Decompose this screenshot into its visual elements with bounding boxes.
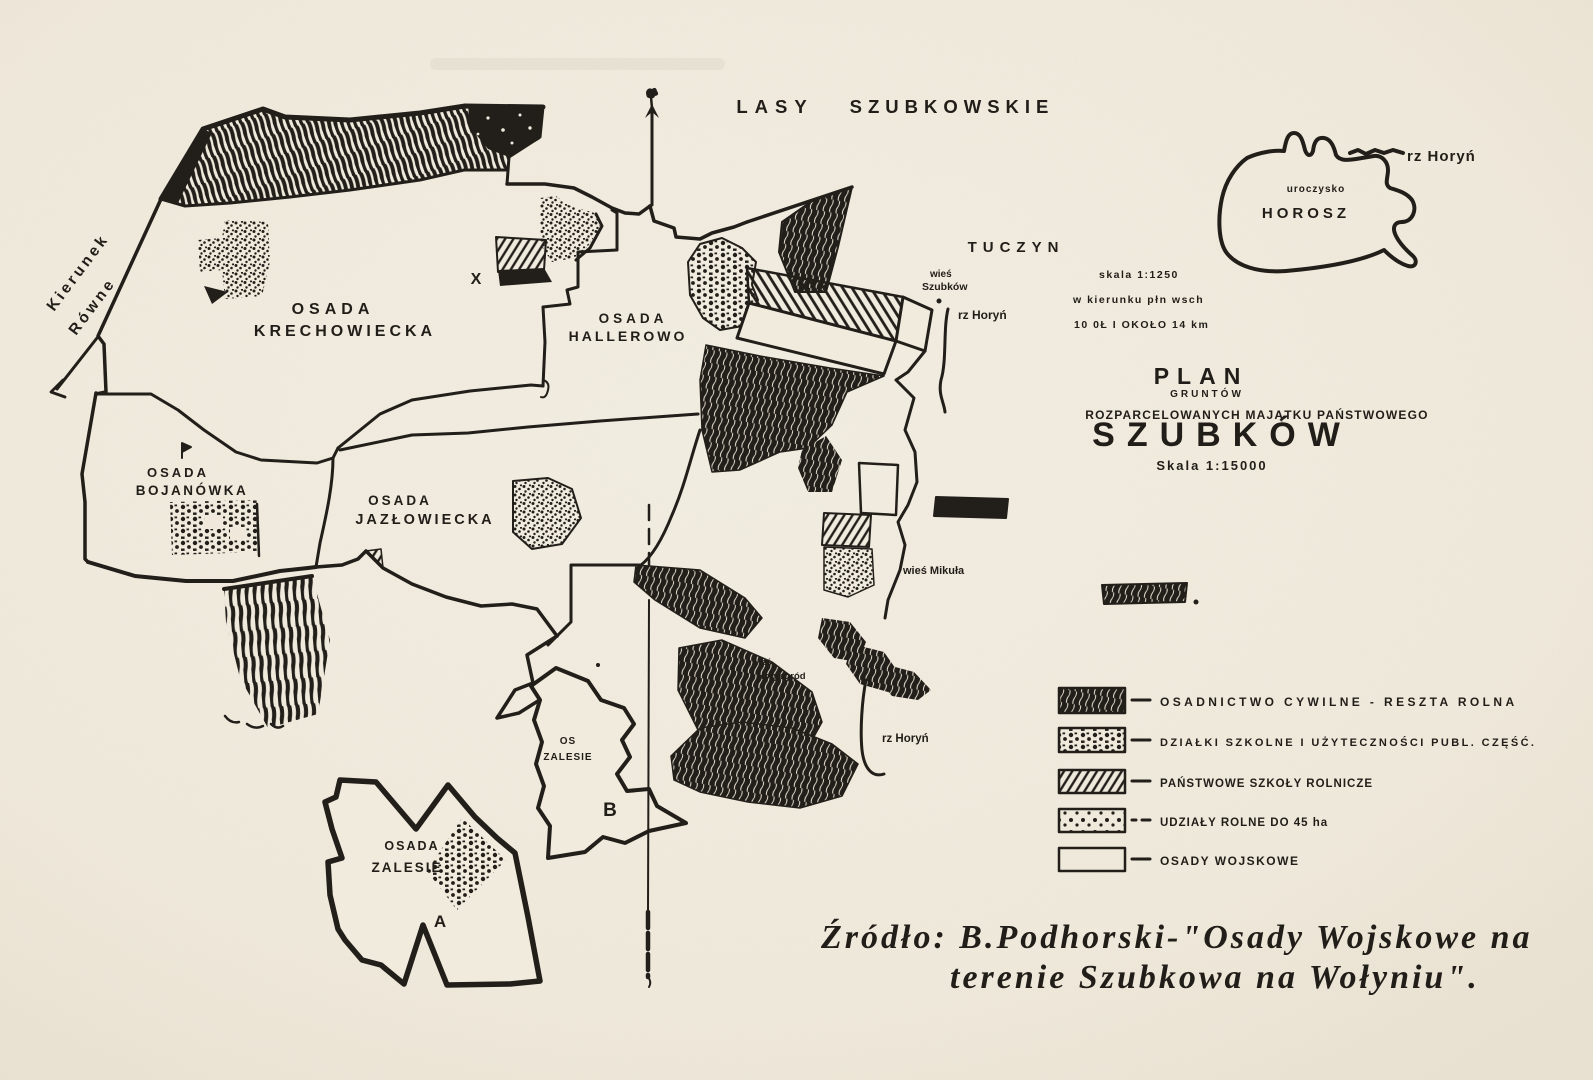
- svg-text:OSADY WOJSKOWE: OSADY WOJSKOWE: [1160, 854, 1299, 868]
- svg-text:uroczysko: uroczysko: [1287, 184, 1345, 195]
- svg-text:Horyngród: Horyngród: [757, 671, 806, 682]
- svg-text:skala 1:1250: skala 1:1250: [1099, 269, 1179, 281]
- svg-text:terenie Szubkowa na Wołyniu".: terenie Szubkowa na Wołyniu".: [950, 959, 1480, 996]
- svg-text:ZALESIE: ZALESIE: [543, 752, 592, 763]
- svg-text:TUCZYN: TUCZYN: [968, 239, 1065, 256]
- svg-text:PLAN: PLAN: [1154, 363, 1249, 389]
- svg-text:DZIAŁKI SZKOLNE I UŻYTECZNOŚCI: DZIAŁKI SZKOLNE I UŻYTECZNOŚCI PUBL. CZĘ…: [1160, 736, 1536, 749]
- svg-text:GRUNTÓW: GRUNTÓW: [1170, 387, 1244, 400]
- svg-text:wieś Mikuła: wieś Mikuła: [902, 565, 965, 577]
- svg-text:rz Horyń: rz Horyń: [1407, 148, 1476, 165]
- svg-text:UDZIAŁY ROLNE DO 45 ha: UDZIAŁY ROLNE DO 45 ha: [1160, 817, 1328, 829]
- svg-text:B: B: [603, 800, 617, 821]
- svg-text:X: X: [471, 271, 482, 288]
- svg-text:w kierunku płn wsch: w kierunku płn wsch: [1072, 294, 1204, 306]
- svg-text:OSADA: OSADA: [147, 465, 209, 480]
- svg-text:LASY: LASY: [736, 96, 813, 117]
- svg-text:ZALESIE: ZALESIE: [371, 860, 442, 875]
- svg-text:OS: OS: [560, 736, 576, 747]
- svg-text:SZUBKÓW: SZUBKÓW: [1092, 416, 1352, 454]
- svg-text:Źródło: B.Podhorski-"Osady Woj: Źródło: B.Podhorski-"Osady Wojskowe na: [820, 919, 1533, 956]
- svg-text:Szubków: Szubków: [922, 281, 968, 293]
- svg-text:rz Horyń: rz Horyń: [958, 308, 1007, 322]
- svg-text:wieś: wieś: [929, 269, 952, 280]
- svg-text:A: A: [434, 912, 446, 931]
- svg-text:OSADA: OSADA: [292, 301, 375, 318]
- svg-text:OSADNICTWO CYWILNE - RESZTA RO: OSADNICTWO CYWILNE - RESZTA ROLNA: [1160, 695, 1518, 709]
- svg-text:JAZŁOWIECKA: JAZŁOWIECKA: [355, 512, 494, 528]
- svg-text:wieś: wieś: [751, 657, 772, 667]
- svg-text:HALLEROWO: HALLEROWO: [569, 328, 688, 344]
- svg-text:10 0Ł I OKOŁO 14 km: 10 0Ł I OKOŁO 14 km: [1074, 319, 1209, 331]
- svg-text:SZUBKOWSKIE: SZUBKOWSKIE: [850, 96, 1055, 117]
- svg-text:OSADA: OSADA: [599, 311, 668, 326]
- svg-text:PAŃSTWOWE SZKOŁY ROLNICZE: PAŃSTWOWE SZKOŁY ROLNICZE: [1160, 777, 1373, 790]
- svg-text:HOROSZ: HOROSZ: [1262, 205, 1350, 222]
- svg-text:rz Horyń: rz Horyń: [882, 733, 929, 745]
- svg-text:BOJANÓWKA: BOJANÓWKA: [136, 483, 249, 498]
- svg-text:Skala 1:15000: Skala 1:15000: [1156, 458, 1267, 473]
- svg-text:OSADA: OSADA: [384, 839, 439, 853]
- svg-text:OSADA: OSADA: [368, 493, 432, 508]
- svg-text:KRECHOWIECKA: KRECHOWIECKA: [254, 323, 436, 340]
